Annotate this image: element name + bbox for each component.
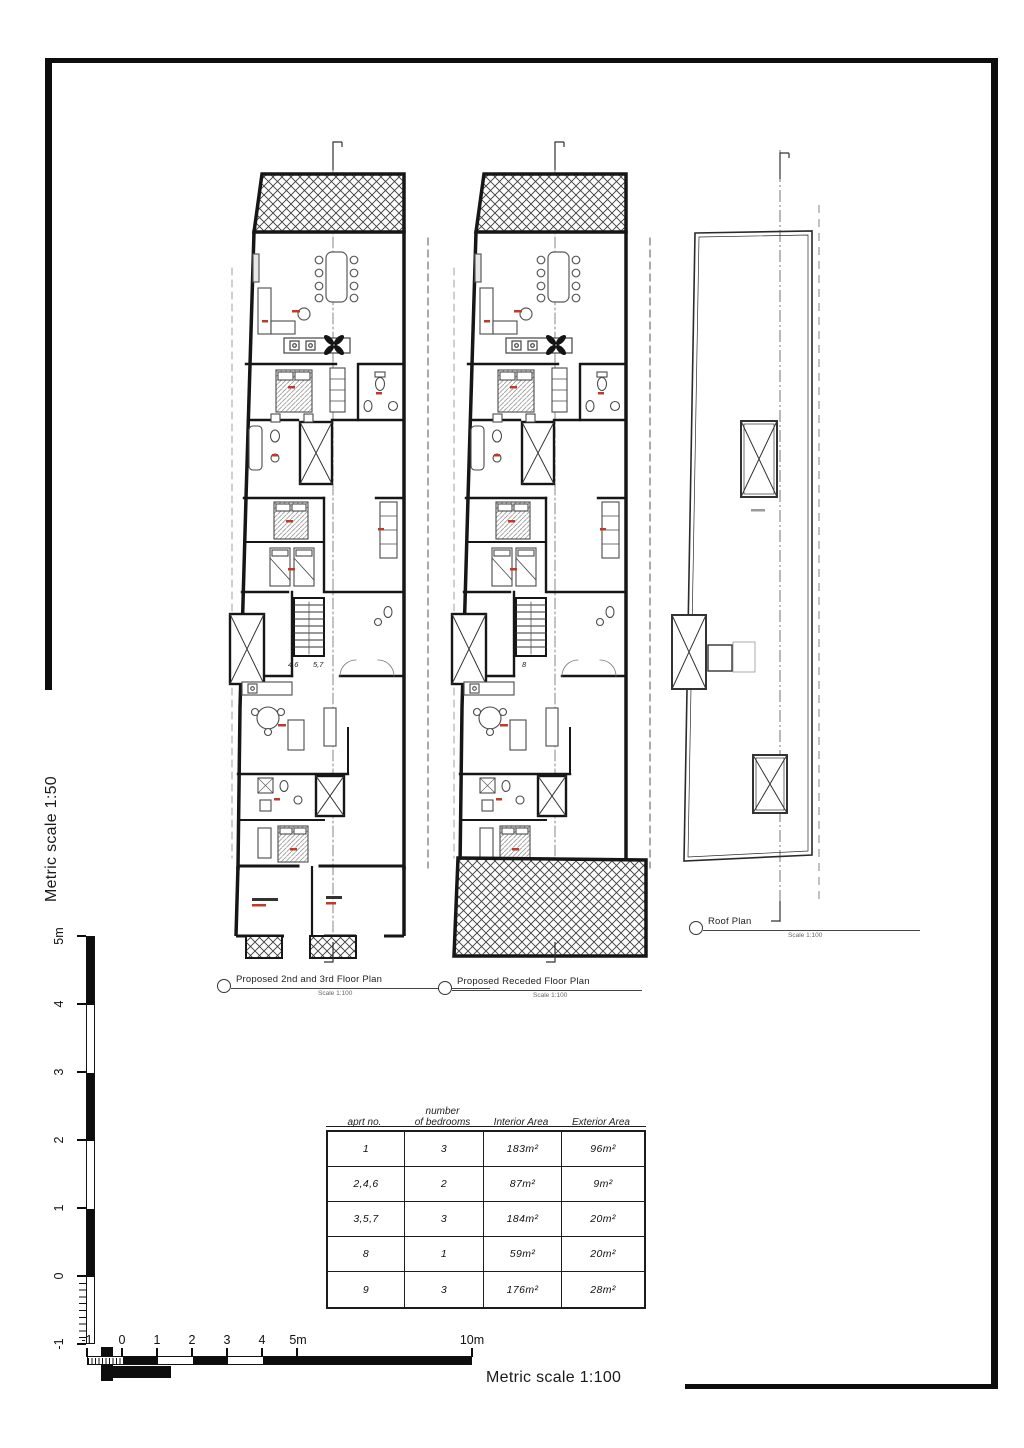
cell-aprt: 8 bbox=[328, 1237, 405, 1272]
roof-label-mark bbox=[751, 509, 765, 512]
cell-interior: 183m² bbox=[484, 1132, 562, 1167]
table-header: aprt no. number of bedrooms Interior Are… bbox=[326, 1096, 642, 1130]
scale-bar-segment bbox=[123, 1357, 158, 1364]
cell-interior: 176m² bbox=[484, 1272, 562, 1307]
cell-bedrooms: 1 bbox=[405, 1237, 484, 1272]
scale-tick bbox=[77, 935, 86, 937]
title-bubble-roof bbox=[689, 921, 703, 935]
cell-exterior: 20m² bbox=[562, 1237, 644, 1272]
cell-interior: 87m² bbox=[484, 1167, 562, 1202]
horizontal-scale-title: Metric scale 1:100 bbox=[486, 1369, 621, 1387]
door-label-4-6: 4,6 bbox=[288, 660, 299, 669]
scale-tick bbox=[261, 1348, 263, 1357]
hscale-tick-label: 2 bbox=[177, 1333, 207, 1347]
vscale-tick-label: 3 bbox=[52, 1057, 66, 1087]
cell-exterior: 20m² bbox=[562, 1202, 644, 1237]
cell-bedrooms: 3 bbox=[405, 1132, 484, 1167]
receded-terrace-hatch bbox=[454, 858, 646, 956]
scale-bar-segment bbox=[193, 1357, 228, 1364]
scale-bar-segment bbox=[87, 1073, 94, 1141]
vertical-scale-title: Metric scale 1:50 bbox=[43, 759, 61, 919]
cell-aprt: 1 bbox=[328, 1132, 405, 1167]
plan-title-middle: Proposed Receded Floor Plan bbox=[457, 976, 590, 987]
vscale-tick-label: 4 bbox=[52, 989, 66, 1019]
table-top-rule bbox=[326, 1126, 646, 1127]
scale-tick bbox=[121, 1348, 123, 1357]
drawing-sheet: 4,6 5,7 8 bbox=[0, 0, 1024, 1448]
scale-tick bbox=[471, 1348, 473, 1357]
hscale-tick-label: 4 bbox=[247, 1333, 277, 1347]
frame-left bbox=[45, 58, 52, 690]
scale-tick bbox=[191, 1348, 193, 1357]
scale-bar-segment bbox=[87, 1209, 94, 1277]
floor-plan-receded: 8 bbox=[450, 136, 654, 966]
cell-bedrooms: 3 bbox=[405, 1272, 484, 1307]
apartment-table: 1 3 183m² 96m² 2,4,6 2 87m² 9m² 3,5,7 3 … bbox=[326, 1130, 646, 1309]
scale-tick bbox=[226, 1348, 228, 1357]
scale-tick bbox=[77, 1071, 86, 1073]
vscale-tick-label: 2 bbox=[52, 1125, 66, 1155]
plan-scale-middle: Scale 1:100 bbox=[533, 992, 567, 999]
scale-tick bbox=[77, 1003, 86, 1005]
vscale-tick-label: 1 bbox=[52, 1193, 66, 1223]
cell-aprt: 3,5,7 bbox=[328, 1202, 405, 1237]
roof-shaft-left bbox=[672, 615, 755, 689]
hscale-tick-label: -1 bbox=[72, 1333, 102, 1347]
horizontal-scale-subticks bbox=[88, 1358, 122, 1364]
vscale-tick-label: 5m bbox=[52, 921, 66, 951]
scale-tick bbox=[296, 1348, 298, 1357]
balcony-hatch-left bbox=[246, 936, 282, 958]
plan-title-left: Proposed 2nd and 3rd Floor Plan bbox=[236, 974, 382, 985]
cell-aprt: 9 bbox=[328, 1272, 405, 1307]
scale-tick bbox=[156, 1348, 158, 1357]
terrace-label-marks bbox=[252, 896, 342, 907]
horizontal-scale-bar bbox=[87, 1356, 472, 1365]
hscale-tick-label: 1 bbox=[142, 1333, 172, 1347]
floor-plan-2nd-3rd: 4,6 5,7 bbox=[228, 136, 432, 966]
cell-interior: 184m² bbox=[484, 1202, 562, 1237]
door-label-5-7: 5,7 bbox=[313, 660, 324, 669]
plan-scale-roof: Scale 1:100 bbox=[788, 932, 822, 939]
frame-top bbox=[45, 58, 998, 63]
hscale-tick-label: 3 bbox=[212, 1333, 242, 1347]
frame-bottom-right bbox=[685, 1384, 998, 1389]
hscale-tick-label: 10m bbox=[457, 1333, 487, 1347]
scale-tick bbox=[77, 1207, 86, 1209]
hscale-tick-label: 0 bbox=[107, 1333, 137, 1347]
header-bedrooms: number of bedrooms bbox=[415, 1107, 471, 1128]
title-bubble-left bbox=[217, 979, 231, 993]
vertical-scale-bar bbox=[86, 936, 95, 1344]
frame-right bbox=[991, 58, 998, 1389]
vscale-tick-label: -1 bbox=[52, 1329, 66, 1359]
plan-title-roof: Roof Plan bbox=[708, 916, 752, 927]
cell-exterior: 28m² bbox=[562, 1272, 644, 1307]
plan-scale-left: Scale 1:100 bbox=[318, 990, 352, 997]
cell-bedrooms: 2 bbox=[405, 1167, 484, 1202]
scale-tick bbox=[77, 1275, 86, 1277]
cell-exterior: 96m² bbox=[562, 1132, 644, 1167]
door-label-8: 8 bbox=[522, 660, 527, 669]
roof-plan-drawing bbox=[663, 145, 825, 945]
title-bubble-middle bbox=[438, 981, 452, 995]
roof-skylight-lower bbox=[753, 755, 787, 813]
cell-interior: 59m² bbox=[484, 1237, 562, 1272]
vscale-tick-label: 0 bbox=[52, 1261, 66, 1291]
scale-bar-segment bbox=[263, 1357, 471, 1364]
hscale-tick-label: 5m bbox=[283, 1333, 313, 1347]
scale-tick bbox=[86, 1348, 88, 1357]
cell-aprt: 2,4,6 bbox=[328, 1167, 405, 1202]
frame-corner-mark-horizontal bbox=[101, 1366, 171, 1378]
cell-exterior: 9m² bbox=[562, 1167, 644, 1202]
roof-outline bbox=[684, 231, 812, 861]
scale-bar-segment bbox=[87, 937, 94, 1005]
roof-skylight-upper bbox=[741, 421, 777, 497]
cell-bedrooms: 3 bbox=[405, 1202, 484, 1237]
scale-tick bbox=[77, 1139, 86, 1141]
